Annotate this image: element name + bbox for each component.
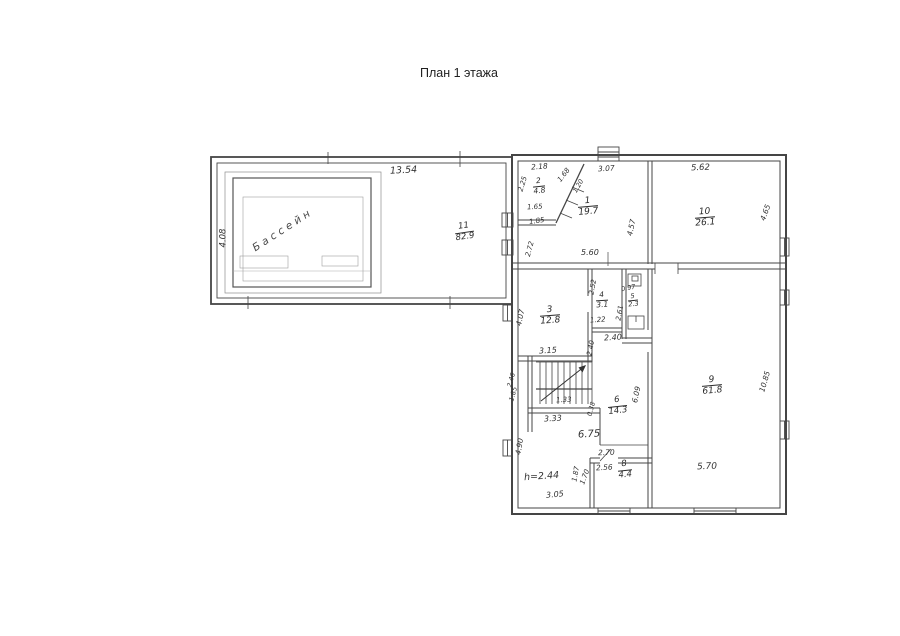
room-4-area: 3.1 (596, 300, 609, 309)
dim-240-h: 2.40 (604, 333, 622, 343)
room-9-area: 61.8 (702, 385, 723, 397)
room-3-label: 3 12.8 (539, 304, 561, 327)
dim-560: 5.60 (581, 248, 599, 257)
room-11-label: 11 82.9 (454, 221, 476, 244)
room-8-label: 8 4.4 (617, 459, 633, 481)
dim-562: 5.62 (691, 163, 710, 174)
dim-256: 2.56 (596, 463, 613, 473)
room-9-label: 9 61.8 (701, 374, 723, 397)
dim-307: 3.07 (598, 164, 615, 174)
room-8-area: 4.4 (618, 470, 632, 481)
dim-218: 2.18 (531, 161, 548, 171)
room-1-label: 1 19.7 (577, 195, 599, 218)
dim-270: 2.70 (598, 448, 615, 458)
room-5-label: 5 2.3 (627, 293, 639, 310)
dim-pool-depth: 4.08 (218, 229, 228, 248)
room-3-area: 12.8 (540, 316, 561, 328)
room-10-label: 10 26.1 (694, 206, 716, 229)
dim-165: 1.65 (527, 203, 543, 212)
room-5-area: 2.3 (628, 301, 639, 310)
window-marks (502, 213, 789, 514)
dim-122: 1.22 (590, 315, 606, 324)
room-4-label: 4 3.1 (595, 291, 608, 310)
main-building-walls (512, 155, 786, 514)
dim-675: 6.75 (578, 428, 601, 440)
dim-133: 1.33 (556, 396, 572, 405)
pool-outline (225, 172, 381, 293)
room-10-area: 26.1 (695, 218, 716, 230)
room-6-label: 6 14.3 (607, 395, 628, 417)
room-2-label: 2 4.8 (532, 176, 546, 195)
floor-plan-linework (0, 0, 900, 636)
floor-plan-canvas: План 1 этажа Бассейн 13.54 4.08 11 82.9 … (0, 0, 900, 636)
page-title: План 1 этажа (420, 66, 498, 80)
room-2-area: 4.8 (533, 186, 546, 196)
dim-305: 3.05 (546, 489, 565, 500)
dim-pool-width: 13.54 (390, 164, 418, 176)
dim-570: 5.70 (697, 462, 717, 473)
sink-icon (628, 316, 644, 329)
pool-steps (240, 256, 358, 268)
room-6-area: 14.3 (608, 406, 628, 418)
dim-315: 3.15 (539, 346, 557, 356)
room-1-area: 19.7 (578, 206, 599, 218)
dim-333: 3.33 (544, 414, 562, 424)
